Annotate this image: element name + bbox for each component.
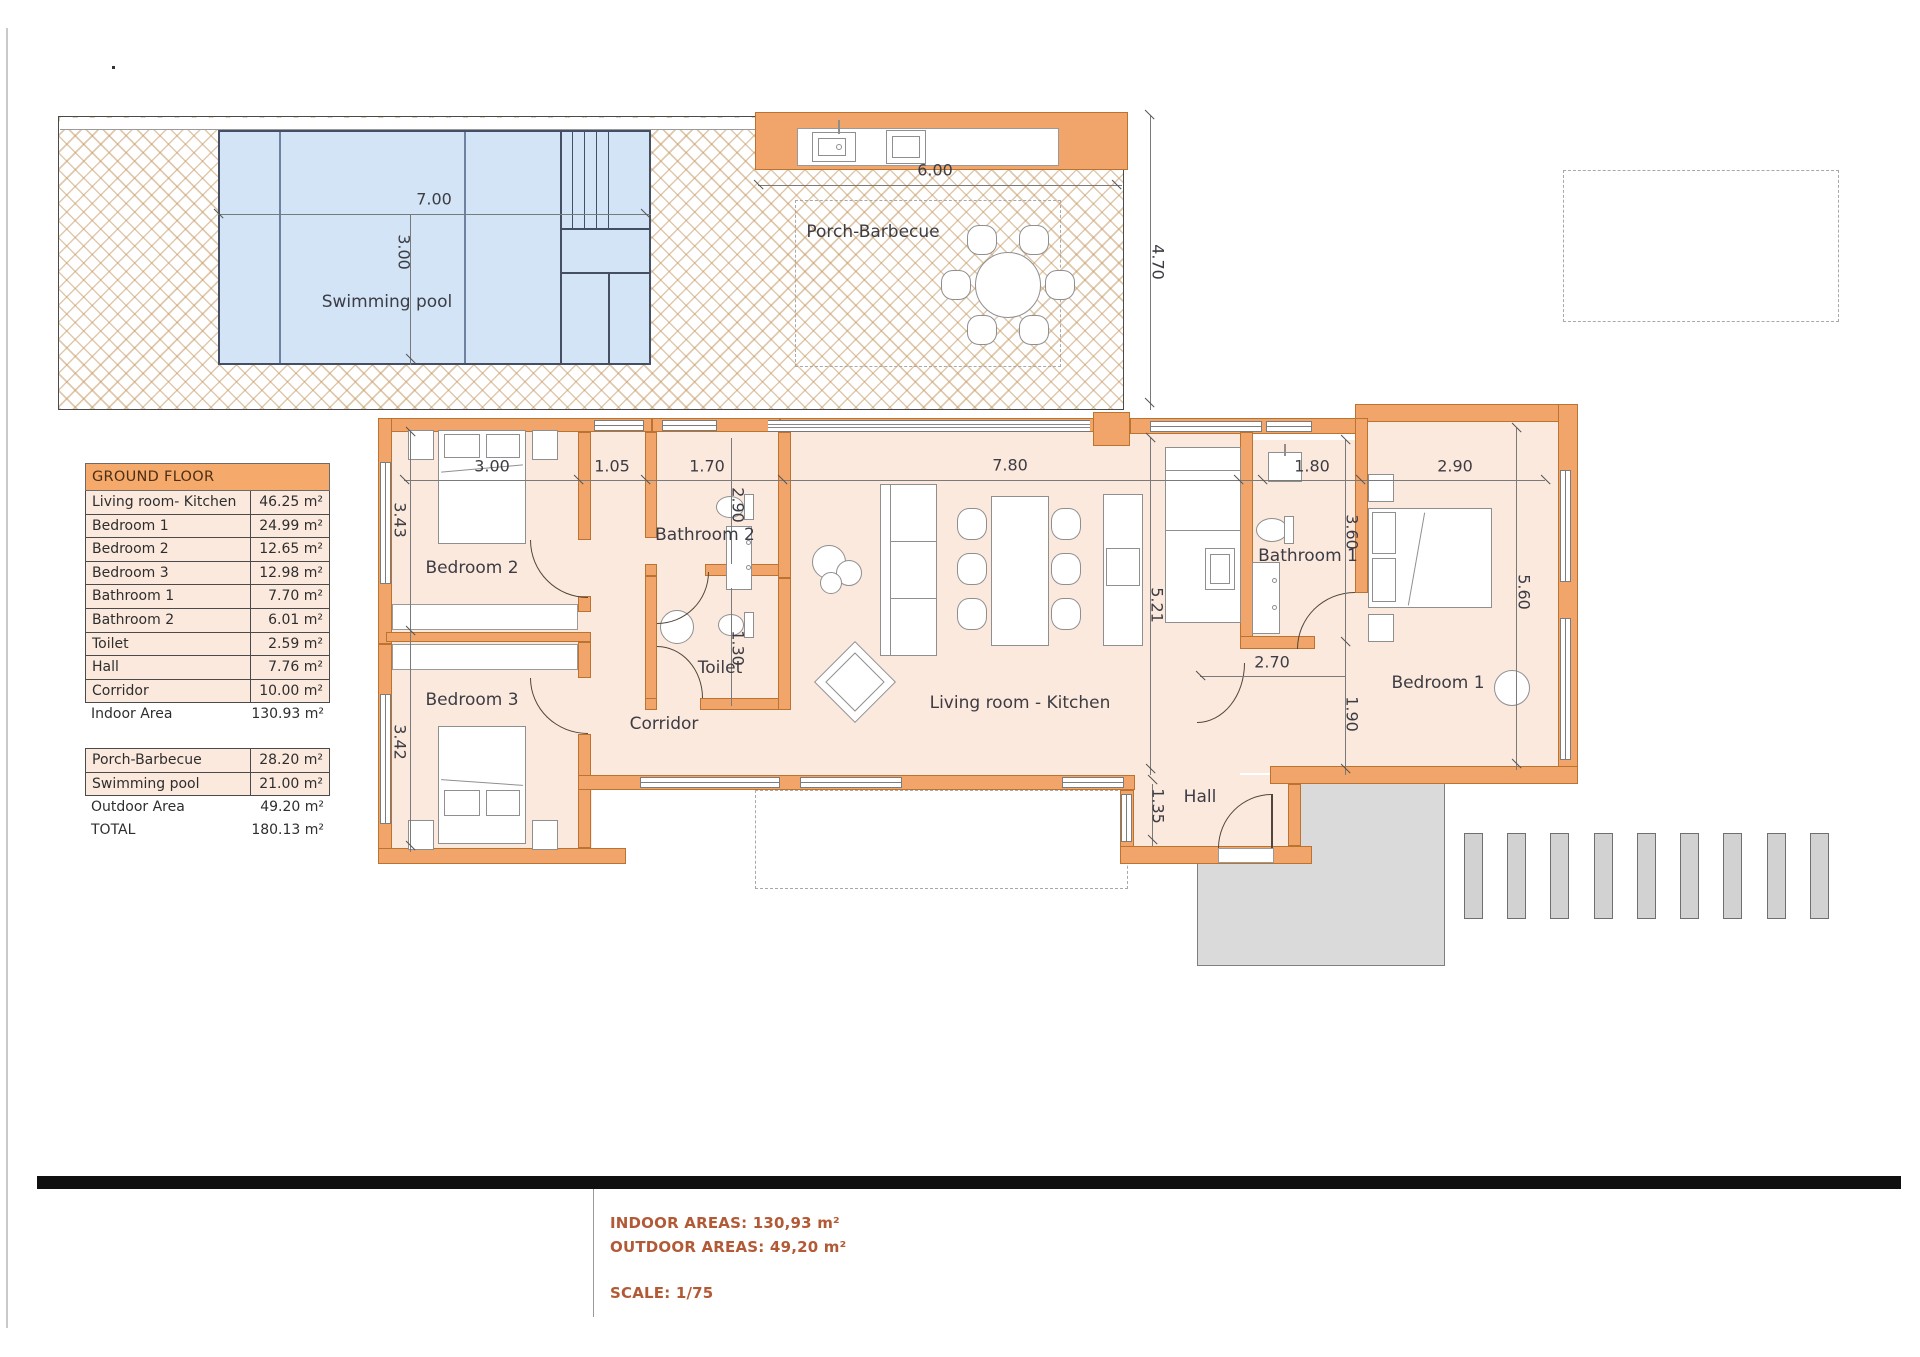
wall — [1288, 784, 1301, 846]
nightstand — [532, 820, 558, 850]
pool-step-line — [608, 272, 610, 363]
entrance-door-opening — [1218, 848, 1274, 863]
sofa-cushion-line — [890, 541, 936, 542]
sofa — [880, 484, 937, 656]
dim-living-height: 5.21 — [1148, 587, 1167, 623]
area-row-name: Bedroom 1 — [86, 515, 251, 538]
footer-scale: SCALE: 1/75 — [610, 1284, 713, 1302]
area-row-name: Bedroom 2 — [86, 538, 251, 561]
area-row-name: Bedroom 3 — [86, 562, 251, 585]
grand-total-name: TOTAL — [85, 819, 249, 842]
grand-total-value: 180.13 m² — [249, 819, 330, 842]
area-table-row: Toilet2.59 m² — [85, 633, 330, 657]
dim-entry-width: 2.70 — [1254, 653, 1290, 672]
area-table-row: Living room- Kitchen46.25 m² — [85, 491, 330, 515]
dim-living-width: 7.80 — [992, 456, 1028, 475]
wall — [778, 432, 791, 578]
sofa-back-line — [890, 484, 891, 656]
south-porch-dashed-outline — [755, 790, 1128, 889]
area-row-value: 7.76 m² — [251, 656, 329, 679]
dim-corridor-top: 1.05 — [594, 457, 630, 476]
dim-hall-height: 1.35 — [1149, 788, 1168, 824]
dim-bathroom2-width: 1.70 — [689, 457, 725, 476]
label-swimming-pool: Swimming pool — [322, 292, 453, 312]
faucet-dot — [1272, 605, 1277, 610]
wall — [645, 698, 657, 710]
window — [380, 462, 391, 584]
dining-chair — [1051, 598, 1081, 630]
plant — [820, 572, 842, 594]
dim-bedroom2-width: 3.00 — [474, 457, 510, 476]
pillow — [486, 434, 520, 458]
dim-bathroom2-height: 2.90 — [729, 487, 748, 523]
wall-column — [1093, 412, 1130, 446]
outdoor-total-name: Outdoor Area — [85, 796, 249, 819]
title-block-bar — [37, 1176, 1901, 1189]
toilet-tank — [1284, 516, 1294, 544]
wall — [1355, 404, 1578, 422]
wall — [645, 564, 657, 576]
wardrobe-bedroom2 — [392, 604, 578, 630]
wall — [578, 432, 591, 540]
dining-chair — [1051, 508, 1081, 540]
sofa-cushion-line — [890, 598, 936, 599]
dim-line-porch-width — [758, 185, 1122, 186]
area-row-name: Bathroom 1 — [86, 585, 251, 608]
pool-lane-line — [279, 132, 281, 363]
dim-line-pool-width — [218, 214, 651, 215]
area-row-name: Hall — [86, 656, 251, 679]
pool-step-line — [560, 272, 651, 274]
wall — [378, 848, 626, 864]
porch-chair — [1019, 225, 1049, 255]
window — [594, 420, 644, 431]
area-row-value: 10.00 m² — [251, 680, 329, 703]
area-table-row: Porch-Barbecue28.20 m² — [85, 749, 330, 773]
window — [1266, 421, 1312, 432]
area-table-row: Swimming pool21.00 m² — [85, 773, 330, 797]
area-row-value: 7.70 m² — [251, 585, 329, 608]
label-bathroom1: Bathroom 1 — [1258, 546, 1358, 566]
dining-chair — [957, 598, 987, 630]
area-table-row: Bedroom 312.98 m² — [85, 562, 330, 586]
pool-lane-line — [464, 132, 466, 363]
label-corridor: Corridor — [630, 714, 699, 734]
label-bedroom2: Bedroom 2 — [425, 558, 518, 578]
title-block-divider — [593, 1189, 594, 1317]
nightstand — [532, 430, 558, 460]
pillow — [1372, 558, 1396, 602]
pillow — [444, 790, 480, 816]
stepping-pad — [1637, 833, 1656, 919]
swimming-pool — [218, 130, 651, 365]
pool-lane-line — [560, 132, 562, 363]
porch-chair — [1019, 315, 1049, 345]
area-table-header: GROUND FLOOR — [85, 463, 330, 491]
indoor-total-value: 130.93 m² — [249, 703, 330, 726]
label-hall: Hall — [1184, 787, 1217, 807]
dim-line-left — [410, 432, 411, 852]
pillow — [1372, 512, 1396, 554]
wall — [1120, 846, 1312, 864]
porch-chair — [967, 225, 997, 255]
barbecue-grid — [892, 136, 920, 158]
wall — [645, 432, 657, 538]
area-table-outdoor-total: Outdoor Area 49.20 m² — [85, 796, 330, 819]
wall — [700, 698, 790, 710]
area-table-row: Bathroom 17.70 m² — [85, 585, 330, 609]
footer-indoor-areas: INDOOR AREAS: 130,93 m² — [610, 1214, 840, 1232]
area-row-name: Corridor — [86, 680, 251, 703]
dim-bedroom3-height: 3.42 — [391, 724, 410, 760]
dim-bedroom1-width: 2.90 — [1437, 457, 1473, 476]
area-row-name: Swimming pool — [86, 773, 251, 796]
kitchen-sink-basin — [1210, 554, 1230, 584]
window-glazing-living — [768, 420, 1090, 432]
area-row-value: 6.01 m² — [251, 609, 329, 632]
pillow — [486, 790, 520, 816]
wall — [1270, 766, 1578, 784]
nightstand — [1368, 614, 1394, 642]
entrance-door-leaf — [1271, 794, 1273, 848]
area-table-row: Bathroom 26.01 m² — [85, 609, 330, 633]
area-table-rows-outdoor: Porch-Barbecue28.20 m²Swimming pool21.00… — [85, 748, 330, 796]
wall-sink-pipe — [1284, 444, 1286, 456]
wall — [1355, 418, 1368, 593]
dim-porch-width: 6.00 — [917, 161, 953, 180]
area-row-value: 46.25 m² — [251, 491, 329, 514]
label-bedroom1: Bedroom 1 — [1391, 673, 1484, 693]
dining-chair — [957, 508, 987, 540]
nightstand — [1368, 474, 1394, 502]
porch-round-table — [975, 252, 1041, 318]
area-table-indoor-total: Indoor Area 130.93 m² — [85, 703, 330, 726]
label-porch-barbecue: Porch-Barbecue — [806, 222, 939, 242]
label-bedroom3: Bedroom 3 — [425, 690, 518, 710]
porch-sink-pipe — [838, 120, 840, 134]
area-row-value: 24.99 m² — [251, 515, 329, 538]
faucet-dot — [1272, 578, 1277, 583]
floor-plan-sheet: 7.00 3.00 Swimming pool Porch-Barbecue 6… — [0, 0, 1920, 1357]
wall — [578, 734, 591, 848]
wall — [578, 642, 591, 678]
porch-chair — [967, 315, 997, 345]
stepping-pad — [1507, 833, 1526, 919]
area-row-name: Porch-Barbecue — [86, 749, 251, 772]
stepping-pad — [1594, 833, 1613, 919]
dining-chair — [957, 553, 987, 585]
vanity-bathroom1 — [1252, 562, 1280, 634]
stepping-pad — [1810, 833, 1829, 919]
dim-pool-width: 7.00 — [416, 190, 452, 209]
label-toilet: Toilet — [698, 658, 742, 678]
kitchen-counter-line — [1165, 530, 1241, 531]
dim-bedroom2-height: 3.43 — [391, 502, 410, 538]
area-table-row: Corridor10.00 m² — [85, 680, 330, 704]
label-living: Living room - Kitchen — [930, 693, 1111, 713]
area-row-value: 12.65 m² — [251, 538, 329, 561]
area-row-name: Bathroom 2 — [86, 609, 251, 632]
area-row-value: 12.98 m² — [251, 562, 329, 585]
porch-sink-faucet — [836, 144, 842, 150]
window — [662, 420, 717, 431]
porch-chair — [1045, 270, 1075, 300]
dining-table — [991, 496, 1049, 646]
window — [1560, 470, 1571, 582]
window — [1062, 777, 1124, 788]
plant — [1494, 670, 1530, 706]
stepping-pad — [1767, 833, 1786, 919]
area-row-value: 2.59 m² — [251, 633, 329, 656]
area-table-row: Bedroom 212.65 m² — [85, 538, 330, 562]
pillow — [444, 434, 480, 458]
porch-chair — [941, 270, 971, 300]
area-row-name: Toilet — [86, 633, 251, 656]
dim-entry-height: 1.90 — [1343, 696, 1362, 732]
dim-line-2-70 — [1200, 676, 1345, 677]
window — [1150, 421, 1262, 432]
footer-outdoor-areas: OUTDOOR AREAS: 49,20 m² — [610, 1238, 846, 1256]
area-table-rows-indoor: Living room- Kitchen46.25 m²Bedroom 124.… — [85, 491, 330, 703]
dim-porch-height: 4.70 — [1149, 244, 1168, 280]
label-bathroom2: Bathroom 2 — [655, 525, 755, 545]
indoor-total-name: Indoor Area — [85, 703, 249, 726]
stepping-pad — [1464, 833, 1483, 919]
outdoor-total-value: 49.20 m² — [249, 796, 330, 819]
dim-bathroom1-width: 1.80 — [1294, 457, 1330, 476]
parking-dashed-outline — [1563, 170, 1839, 322]
wardrobe-bedroom3 — [392, 644, 578, 670]
dim-bedroom1-height: 5.60 — [1515, 574, 1534, 610]
stepping-pad — [1550, 833, 1569, 919]
wall — [645, 576, 657, 710]
area-row-value: 28.20 m² — [251, 749, 329, 772]
dim-bathroom1-height: 3.60 — [1343, 514, 1362, 550]
kitchen-counter — [1165, 447, 1241, 623]
wall — [578, 596, 591, 612]
area-table-grand-total: TOTAL 180.13 m² — [85, 819, 330, 842]
area-table-row: Hall7.76 m² — [85, 656, 330, 680]
area-table-row: Bedroom 124.99 m² — [85, 515, 330, 539]
area-table: GROUND FLOOR Living room- Kitchen46.25 m… — [85, 463, 330, 841]
wall — [386, 632, 591, 642]
wall — [778, 578, 791, 710]
kitchen-counter-line — [1165, 470, 1241, 471]
area-row-name: Living room- Kitchen — [86, 491, 251, 514]
window — [380, 694, 391, 824]
page-border-left — [6, 28, 8, 1328]
stepping-pad — [1723, 833, 1742, 919]
dim-pool-height: 3.00 — [395, 234, 414, 270]
island-hob — [1106, 548, 1140, 586]
window — [800, 777, 902, 788]
area-row-value: 21.00 m² — [251, 773, 329, 796]
faucet-dot — [746, 565, 751, 570]
dim-line-top — [404, 480, 1545, 481]
stepping-pad — [1680, 833, 1699, 919]
pool-step-line — [560, 228, 651, 230]
dining-chair — [1051, 553, 1081, 585]
window — [1121, 794, 1132, 842]
window — [640, 777, 780, 788]
window — [1560, 618, 1571, 760]
reference-dot — [112, 66, 115, 69]
